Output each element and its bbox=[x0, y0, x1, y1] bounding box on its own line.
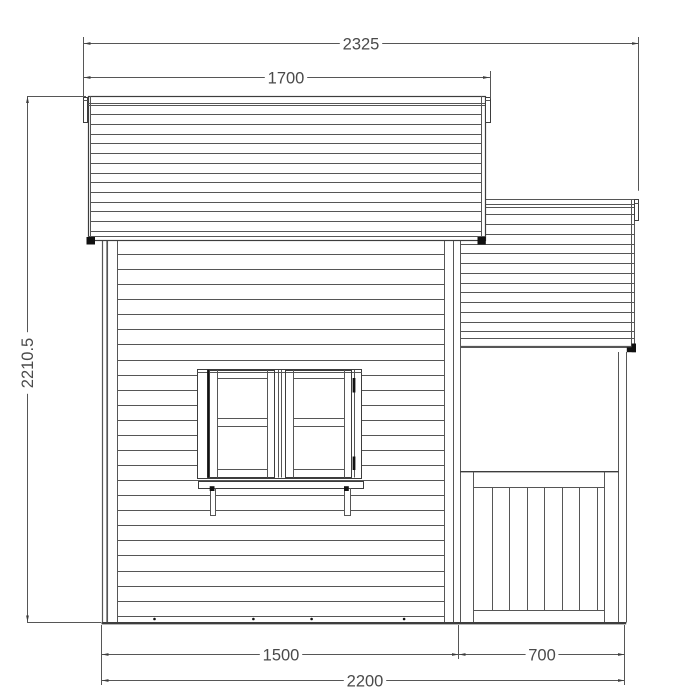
svg-text:2200: 2200 bbox=[347, 673, 384, 691]
svg-text:1700: 1700 bbox=[268, 70, 305, 88]
svg-text:1500: 1500 bbox=[263, 647, 300, 665]
svg-text:2210.5: 2210.5 bbox=[19, 338, 37, 388]
svg-text:700: 700 bbox=[528, 647, 556, 665]
svg-text:2325: 2325 bbox=[343, 36, 380, 54]
